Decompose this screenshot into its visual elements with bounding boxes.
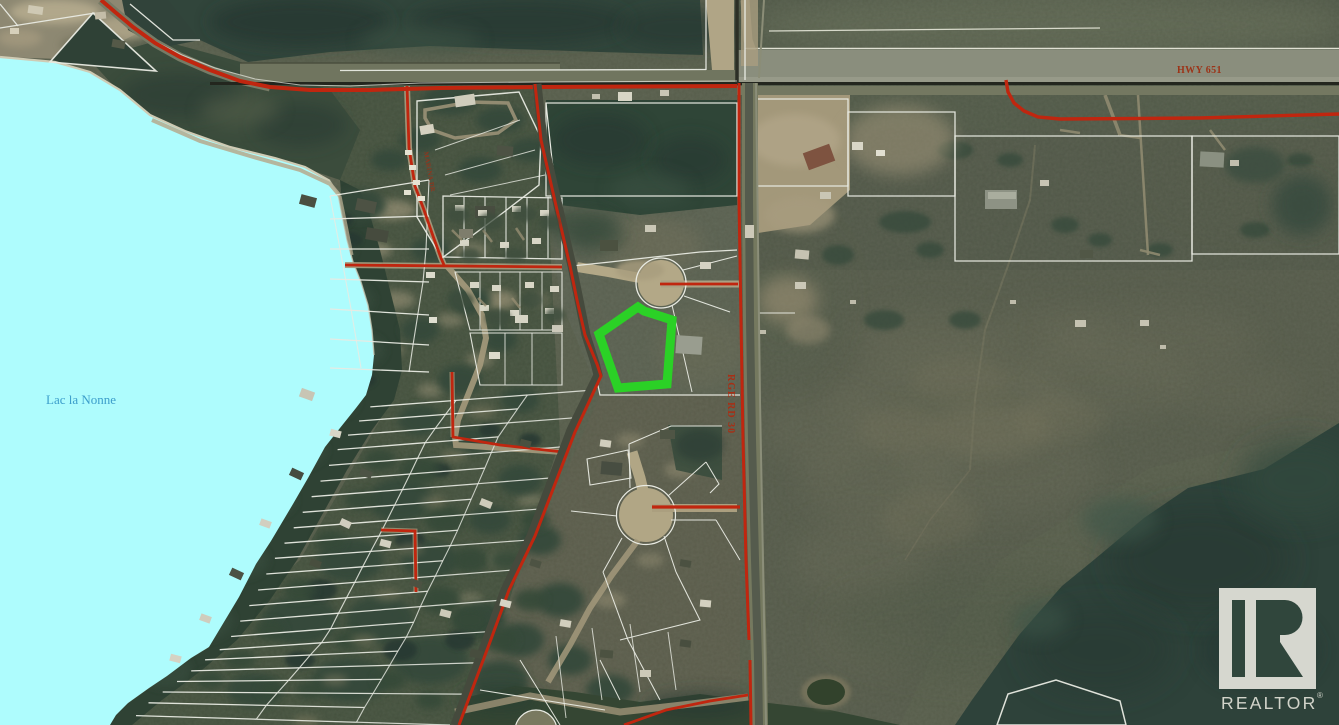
svg-text:REALTOR: REALTOR: [1221, 693, 1317, 713]
svg-text:RGE RD 30: RGE RD 30: [725, 374, 736, 434]
svg-text:Lac la Nonne: Lac la Nonne: [46, 392, 116, 407]
svg-text:®: ®: [1317, 691, 1323, 700]
svg-text:HWY 651: HWY 651: [1177, 65, 1222, 76]
